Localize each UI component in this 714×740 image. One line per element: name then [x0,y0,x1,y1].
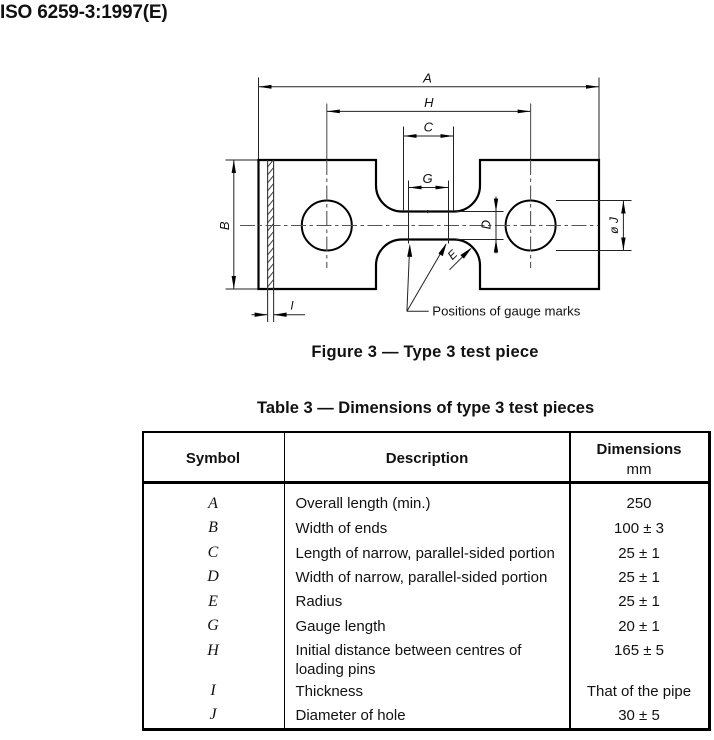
svg-text:D: D [479,220,494,229]
svg-text:C: C [424,120,434,135]
svg-text:G: G [423,171,433,186]
svg-text:B: B [217,221,232,230]
svg-text:ø J: ø J [607,216,621,234]
svg-text:H: H [424,95,434,110]
svg-text:E: E [445,246,461,262]
svg-text:Positions of gauge marks: Positions of gauge marks [432,304,580,319]
svg-text:A: A [422,70,432,85]
svg-text:I: I [290,299,294,313]
